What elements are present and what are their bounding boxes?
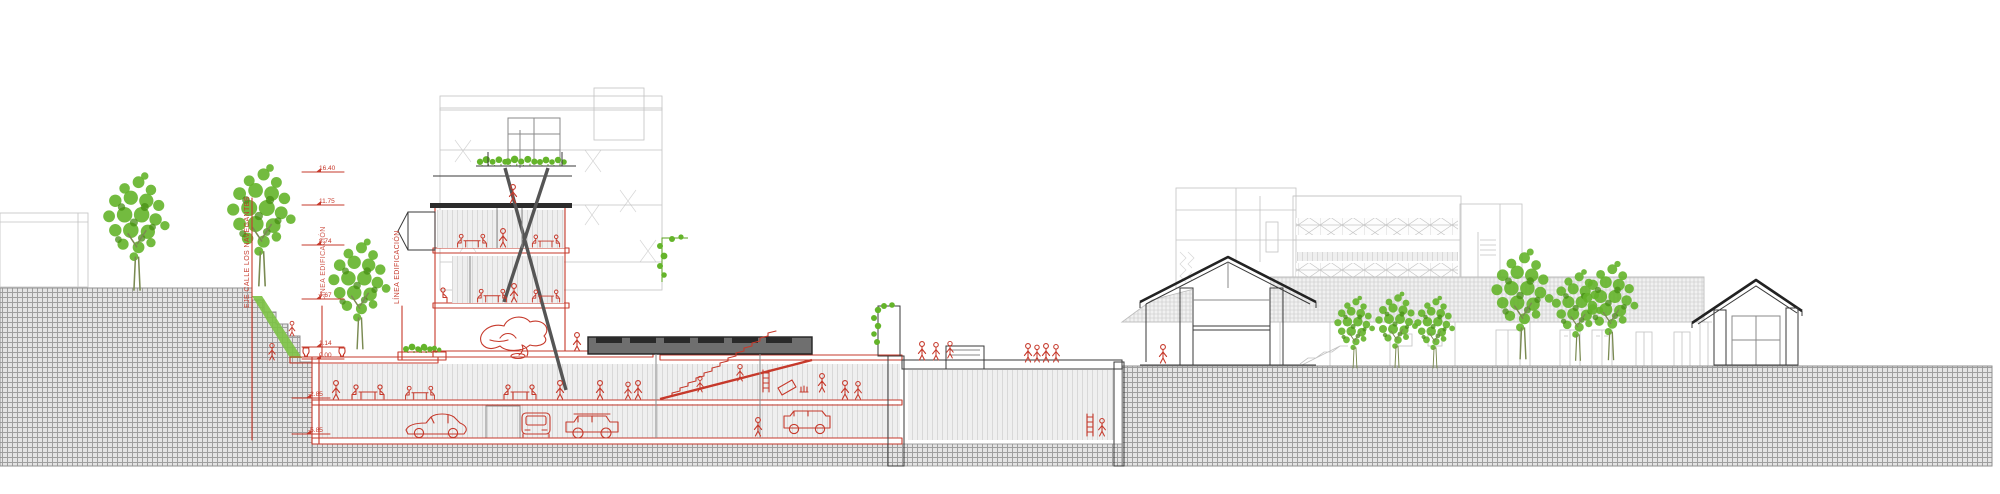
svg-text:4.67: 4.67: [319, 292, 332, 299]
small-shed-section: [1692, 280, 1802, 365]
ground-right: [1122, 366, 1992, 466]
level-marker: 16.40: [302, 165, 344, 172]
svg-text:0.00: 0.00: [319, 352, 332, 359]
level-marker: 11.75: [302, 198, 344, 205]
level-marker: 1.14: [302, 340, 344, 347]
roof-garden: [476, 152, 576, 166]
street-axis-label: EJE CALLE LOS NAVEGANTES: [244, 196, 251, 308]
svg-text:-5.85: -5.85: [308, 427, 323, 434]
vine-pergola: [657, 234, 688, 282]
section-drawing: EJE CALLE LOS NAVEGANTES LÍNEA EDIFICACI…: [0, 0, 2000, 494]
svg-text:16.40: 16.40: [319, 165, 336, 172]
pedestrian: [289, 321, 295, 336]
statue-icon: [339, 348, 345, 356]
section-drawing-canvas: EJE CALLE LOS NAVEGANTES LÍNEA EDIFICACI…: [0, 0, 2000, 494]
green-wall: [871, 302, 900, 356]
statue-icon: [303, 348, 309, 356]
observation-tower: [398, 130, 572, 390]
crowd-group: [1024, 344, 1059, 362]
tower-roof-slab: [430, 203, 572, 208]
ground-under-basement: [312, 444, 904, 466]
building-line-right-label: LÍNEA EDIFICACIÓN: [392, 230, 401, 304]
left-white-building: [0, 213, 88, 287]
svg-text:11.75: 11.75: [319, 198, 335, 205]
svg-text:1.14: 1.14: [319, 340, 332, 347]
svg-text:-2.85: -2.85: [308, 391, 323, 398]
level-marker: 8.74: [302, 238, 344, 245]
tower-balcony-box: [408, 212, 435, 250]
svg-text:8.74: 8.74: [319, 238, 332, 245]
exterior-stair: [1300, 346, 1348, 366]
ground-under-deck: [904, 444, 1122, 466]
